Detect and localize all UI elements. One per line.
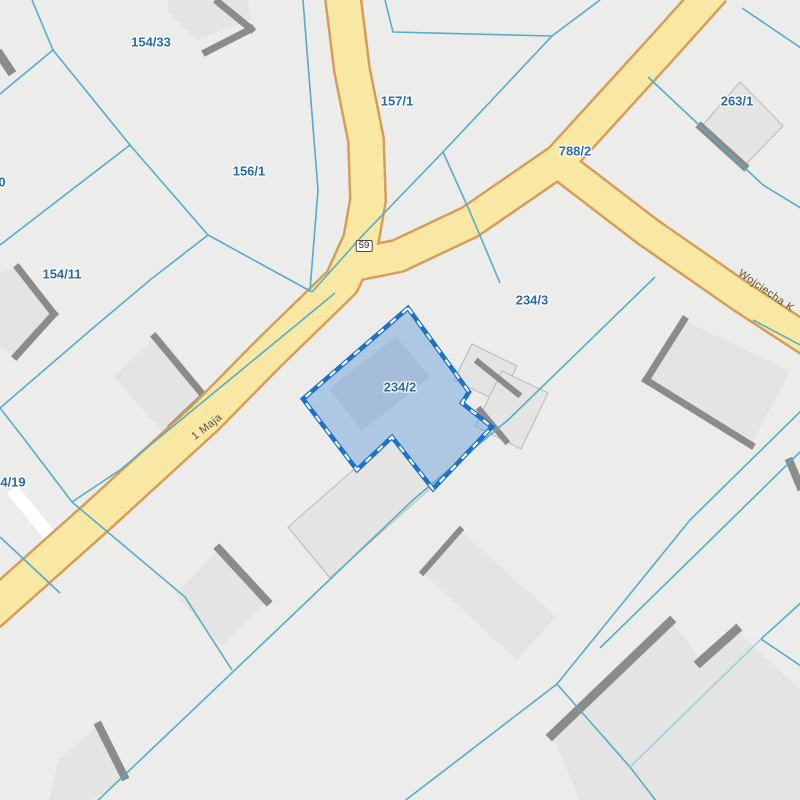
building-shadow [790, 462, 800, 486]
road-wojciecha[interactable] [558, 163, 800, 343]
parcel-label-157-1: 157/1 [381, 94, 414, 109]
parcel-boundary-line [742, 8, 800, 50]
parcel-boundary-line [600, 452, 800, 648]
parcel-label-234-3: 234/3 [516, 293, 549, 308]
parcel-label-0: 0 [0, 175, 6, 190]
parcel-boundary-line [32, 0, 312, 292]
parcel-label-4-19: 4/19 [0, 475, 25, 490]
parcel-boundary-line [303, 0, 318, 290]
parcel-boundary-line [761, 600, 800, 668]
building-shadow [0, 55, 10, 70]
parcel-label-263-1: 263/1 [721, 94, 754, 109]
building [552, 622, 800, 800]
parcel-label-154-33: 154/33 [131, 35, 171, 50]
parcel-label-156-1: 156/1 [233, 164, 266, 179]
parcel-label-234-2: 234/2 [384, 380, 417, 395]
route-number-badge: 59 [356, 240, 373, 252]
parcel-label-788-2: 788/2 [559, 144, 592, 159]
parcel-label-154-11: 154/11 [42, 267, 81, 282]
cadastral-map[interactable]: 154/33157/1156/1154/1104/19788/2263/1234… [0, 0, 800, 800]
building [175, 549, 267, 646]
parcel-boundary-line [385, 0, 552, 36]
parcel-boundary-line [398, 684, 557, 800]
map-layers-svg [0, 0, 800, 800]
parcel-boundary-line [0, 145, 130, 245]
